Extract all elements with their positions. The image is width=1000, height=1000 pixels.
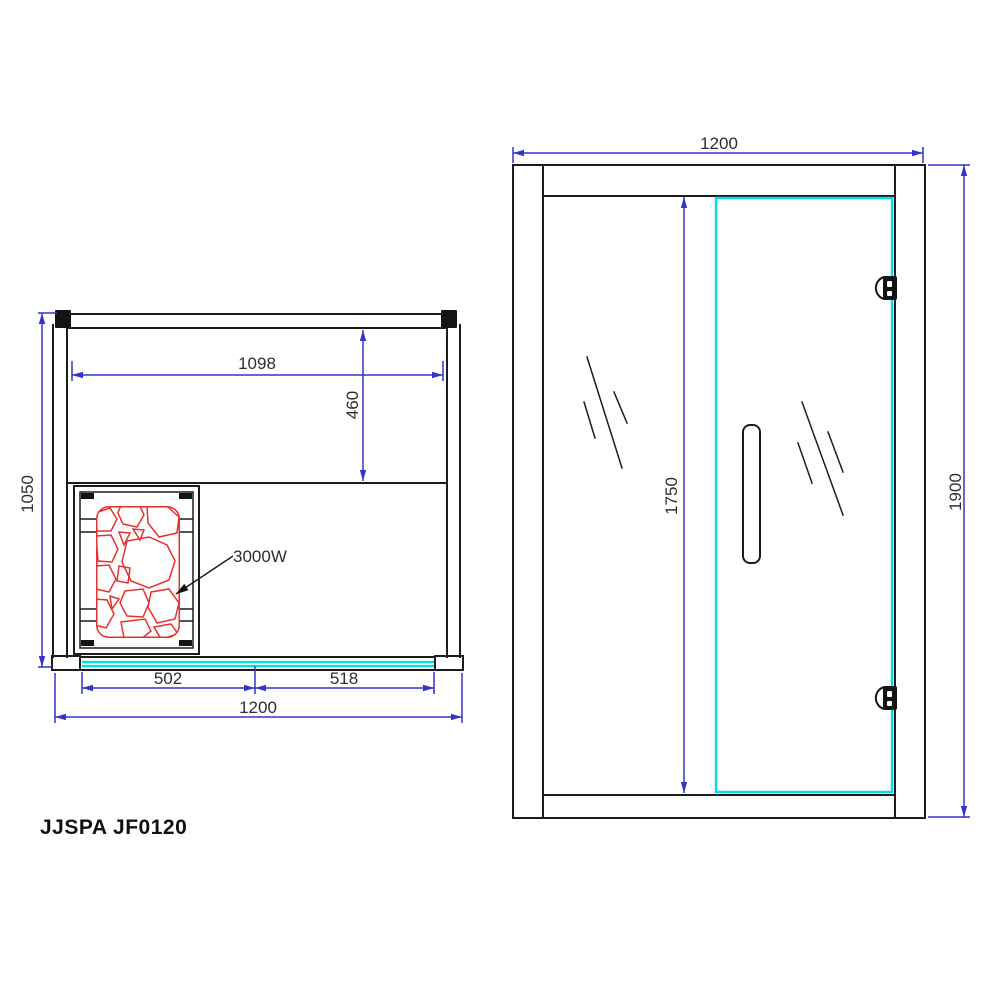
dim-front-height: 1900 bbox=[928, 165, 970, 817]
dim-overall-width-label: 1200 bbox=[239, 698, 277, 717]
dim-glass-left-label: 502 bbox=[154, 669, 182, 688]
plan-left-wall bbox=[53, 325, 67, 657]
dim-interior-width: 1098 bbox=[72, 354, 443, 381]
heater-bracket-bl bbox=[81, 640, 94, 646]
hinge-plate bbox=[883, 686, 897, 710]
hinge-knuckle bbox=[876, 277, 884, 299]
front-rails bbox=[543, 196, 895, 795]
model-title: JJSPA JF0120 bbox=[40, 816, 187, 839]
dim-front-height-label: 1900 bbox=[946, 473, 965, 511]
heater-bracket-tl bbox=[81, 493, 94, 499]
door-hinge-bottom bbox=[876, 686, 897, 710]
heater-bracket-br bbox=[179, 640, 192, 646]
plan-top-wall bbox=[67, 314, 447, 328]
dim-door-height: 1750 bbox=[662, 197, 684, 793]
front-frame bbox=[513, 165, 925, 818]
leader-line bbox=[176, 556, 233, 594]
plan-front-block-left bbox=[52, 656, 80, 670]
plan-corner-post-right bbox=[441, 310, 457, 328]
dim-overall-depth-label: 1050 bbox=[18, 475, 37, 513]
front-dimensions: 1200 1750 1900 bbox=[513, 134, 970, 817]
front-view: 1200 1750 1900 bbox=[513, 134, 970, 818]
hinge-slot bbox=[887, 291, 892, 296]
dim-front-width: 1200 bbox=[513, 134, 923, 163]
door-handle bbox=[743, 425, 760, 563]
hinge-slot bbox=[887, 691, 892, 697]
dim-door-height-label: 1750 bbox=[662, 477, 681, 515]
dim-front-width-label: 1200 bbox=[700, 134, 738, 153]
technical-drawing: 3000W 1050 1098 460 502 bbox=[0, 0, 1000, 1000]
dim-glass-right-label: 518 bbox=[330, 669, 358, 688]
plan-front-glass bbox=[82, 662, 434, 666]
door-hinge-top bbox=[876, 276, 897, 300]
dim-overall-depth: 1050 bbox=[18, 313, 57, 667]
dim-bench-depth-label: 460 bbox=[343, 391, 362, 419]
plan-front-wall bbox=[52, 657, 463, 670]
hinge-slot bbox=[887, 701, 892, 706]
heater bbox=[74, 486, 199, 654]
heater-power-label: 3000W bbox=[233, 547, 287, 566]
drawing-canvas: 3000W 1050 1098 460 502 bbox=[0, 0, 1000, 1000]
heater-bracket-tr bbox=[179, 493, 192, 499]
plan-front-block-right bbox=[435, 656, 463, 670]
hinge-slot bbox=[887, 281, 892, 287]
plan-view: 3000W 1050 1098 460 502 bbox=[18, 310, 463, 723]
dim-interior-width-label: 1098 bbox=[238, 354, 276, 373]
glass-reflection-door bbox=[798, 402, 843, 515]
glass-reflection-left bbox=[584, 357, 627, 468]
front-outer-frame bbox=[513, 165, 925, 818]
plan-corner-post-left bbox=[55, 310, 71, 328]
hinge-knuckle bbox=[876, 687, 884, 709]
dim-ext bbox=[38, 313, 57, 667]
plan-right-wall bbox=[447, 325, 460, 657]
hinge-plate bbox=[883, 276, 897, 300]
dim-overall-width: 1200 bbox=[55, 673, 462, 723]
front-stiles bbox=[543, 165, 895, 818]
dim-bench-depth: 460 bbox=[343, 330, 363, 481]
